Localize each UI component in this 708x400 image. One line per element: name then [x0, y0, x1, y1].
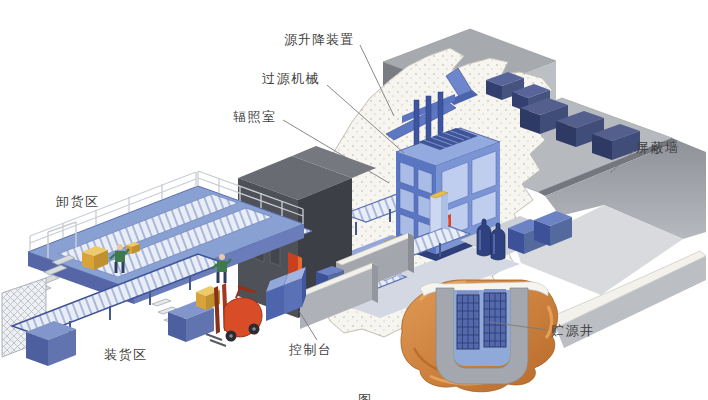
caption-partial: 图 [358, 391, 371, 400]
label-control-console: 控制台 [289, 343, 333, 356]
source-rack [457, 291, 479, 349]
label-transfer-machine: 过源机械 [262, 72, 320, 85]
label-source-hoist: 源升降装置 [284, 33, 354, 46]
label-loading-area: 装货区 [104, 348, 148, 361]
label-source-well: 贮源井 [551, 324, 595, 337]
label-unloading-area: 卸货区 [56, 195, 100, 208]
irradiation-facility-diagram: 源升降装置 过源机械 辐照室 屏蔽墙 卸货区 装货区 控制台 贮源井 图 [0, 0, 708, 400]
label-irradiation-room: 辐照室 [233, 110, 277, 123]
facility-illustration [0, 0, 708, 400]
product-carrier [430, 191, 448, 233]
label-shield-wall: 屏蔽墙 [636, 141, 680, 154]
source-storage-well [401, 280, 558, 392]
source-rack [484, 289, 506, 347]
